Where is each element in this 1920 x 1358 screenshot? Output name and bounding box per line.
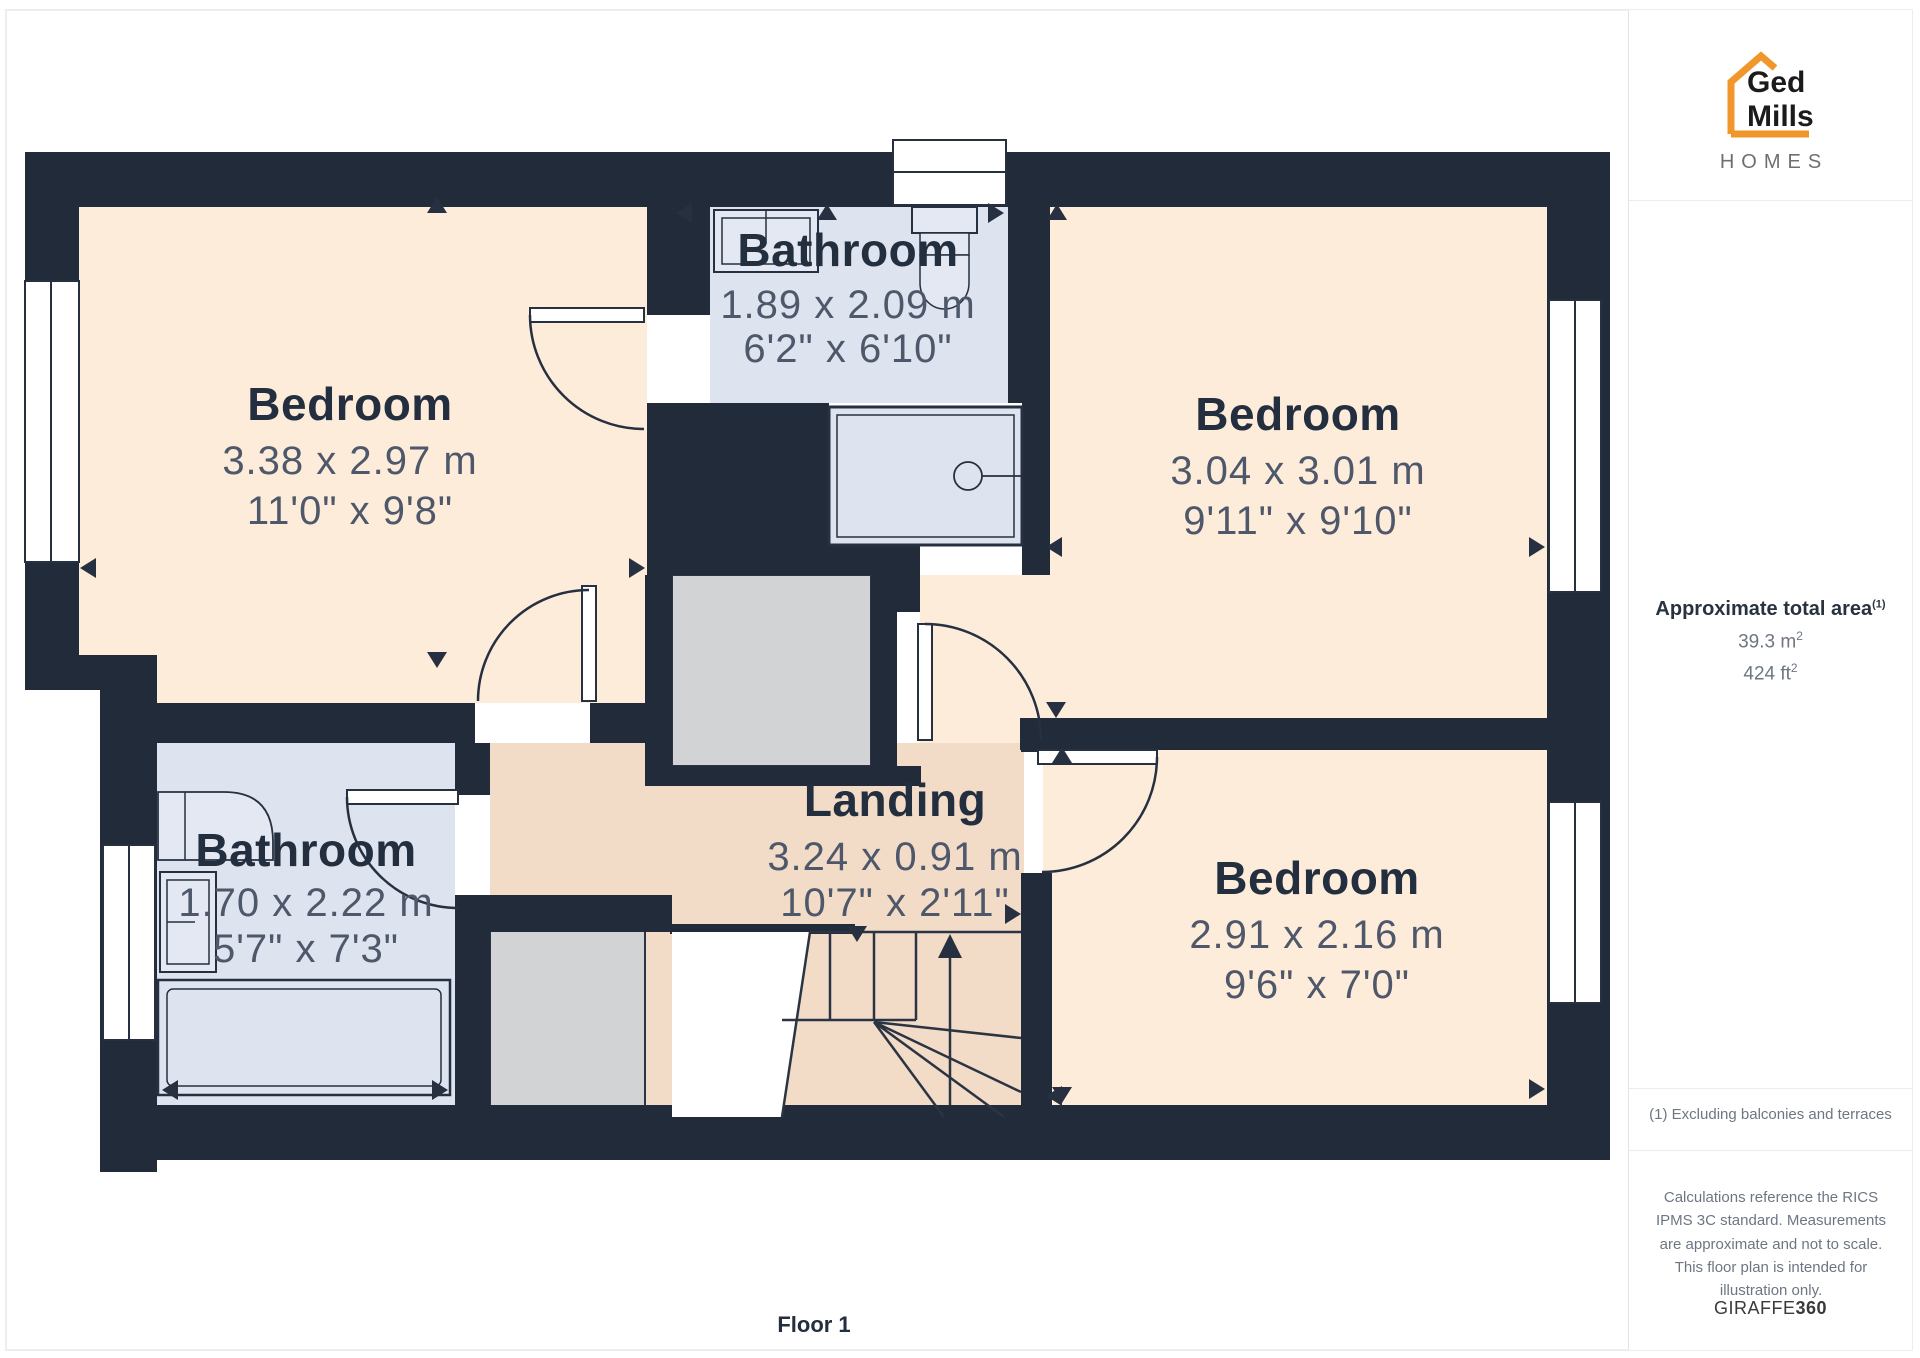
bathroom-1-name: Bathroom [737, 224, 958, 276]
total-area-title-sup: (1) [1872, 598, 1885, 610]
total-area-title-text: Approximate total area [1655, 598, 1872, 620]
total-area-imperial-value: 424 ft [1743, 664, 1791, 685]
bathtub-bathroom-2 [158, 980, 450, 1095]
bedroom-1-dims-imperial: 11'0" x 9'8" [247, 489, 453, 533]
sidebar-divider-footnote [1629, 1088, 1912, 1089]
logo-line2: Mills [1747, 100, 1814, 133]
window-left-upper [25, 281, 79, 562]
landing-name: Landing [804, 774, 986, 826]
sidebar: Ged Mills HOMES Approximate total area(1… [1628, 10, 1912, 1350]
bedroom-3-dims-metric: 2.91 x 2.16 m [1189, 913, 1444, 957]
total-area-imperial-sup: 2 [1791, 661, 1798, 675]
landing-dims-imperial: 10'7" x 2'11" [780, 881, 1009, 925]
window-right-upper [1549, 300, 1601, 592]
bedroom-2-dims-imperial: 9'11" x 9'10" [1183, 499, 1412, 543]
logo-line1: Ged [1747, 66, 1805, 99]
disclaimer-text: Calculations reference the RICS IPMS 3C … [1653, 1186, 1889, 1302]
total-area-title: Approximate total area(1) [1629, 598, 1912, 621]
bedroom-2-name: Bedroom [1195, 388, 1400, 440]
bedroom-3-name: Bedroom [1214, 852, 1419, 904]
logo-line3: HOMES [1629, 151, 1912, 174]
bedroom-1-dims-metric: 3.38 x 2.97 m [222, 439, 477, 483]
bathroom-2-dims-metric: 1.70 x 2.22 m [178, 881, 433, 925]
cupboard-box [490, 930, 645, 1112]
total-area-metric-sup: 2 [1796, 629, 1803, 643]
landing-dims-metric: 3.24 x 0.91 m [767, 835, 1022, 879]
window-left-lower [103, 845, 155, 1040]
bedroom-3-dims-imperial: 9'6" x 7'0" [1224, 963, 1410, 1007]
total-area-imperial: 424 ft2 [1629, 661, 1912, 685]
area-footnote: (1) Excluding balconies and terraces [1629, 1106, 1912, 1123]
bedroom-2-dims-metric: 3.04 x 3.01 m [1170, 449, 1425, 493]
stairwell-box [672, 575, 871, 766]
brand-logo: Ged Mills HOMES [1629, 48, 1912, 174]
floorplan-page: Bedroom 3.38 x 2.97 m 11'0" x 9'8" Bathr… [0, 0, 1920, 1358]
bathroom-2-name: Bathroom [195, 824, 416, 876]
total-area-metric-value: 39.3 m [1738, 631, 1796, 652]
giraffe360-suffix: 360 [1795, 1298, 1827, 1318]
giraffe360-brand: GIRAFFE360 [1629, 1298, 1912, 1319]
total-area-block: Approximate total area(1) 39.3 m2 424 ft… [1629, 598, 1912, 686]
total-area-metric: 39.3 m2 [1629, 629, 1912, 653]
bedroom-1-name: Bedroom [247, 378, 452, 430]
sidebar-divider-disclaimer [1629, 1150, 1912, 1151]
house-logo-icon: Ged Mills [1705, 48, 1837, 144]
window-right-lower [1549, 802, 1601, 1003]
sidebar-divider-top [1629, 200, 1912, 201]
floor-label: Floor 1 [0, 1312, 1628, 1338]
chimney-vent [893, 140, 1006, 205]
bathroom-1-dims-metric: 1.89 x 2.09 m [720, 283, 975, 327]
shower-bathroom-1 [829, 407, 1022, 545]
giraffe360-name: GIRAFFE [1714, 1298, 1796, 1318]
bathroom-2-dims-imperial: 5'7" x 7'3" [213, 927, 399, 971]
bathroom-1-dims-imperial: 6'2" x 6'10" [743, 327, 952, 371]
